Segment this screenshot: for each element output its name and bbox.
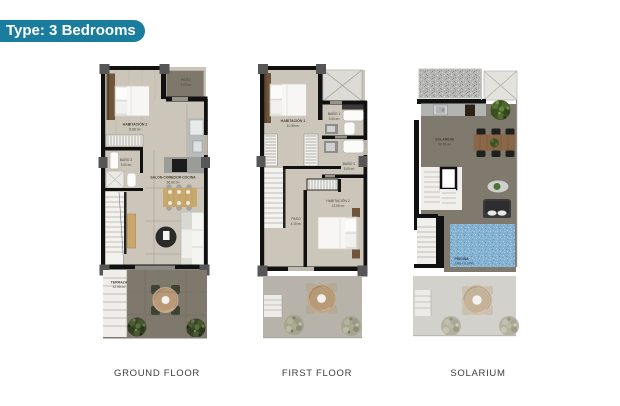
svg-text:PATIO: PATIO	[181, 78, 191, 82]
svg-text:3.00 x 2.00m: 3.00 x 2.00m	[455, 262, 474, 266]
svg-text:PASO: PASO	[291, 217, 301, 221]
svg-text:BAÑO 2: BAÑO 2	[120, 157, 133, 162]
svg-text:SALON-COMEDOR-COCINA: SALON-COMEDOR-COCINA	[150, 176, 196, 180]
svg-text:30.78 m²: 30.78 m²	[438, 143, 452, 147]
svg-text:3.00 m²: 3.00 m²	[181, 83, 192, 87]
svg-text:3.00 m²: 3.00 m²	[329, 117, 340, 121]
svg-text:HABITACIÓN 1: HABITACIÓN 1	[281, 118, 306, 123]
svg-text:HABITACIÓN 2: HABITACIÓN 2	[123, 122, 148, 127]
svg-text:SOLARIUM: SOLARIUM	[435, 138, 454, 142]
svg-text:PISCINA: PISCINA	[455, 257, 470, 261]
svg-text:TERRAZA: TERRAZA	[111, 281, 128, 285]
svg-text:BAÑO 1: BAÑO 1	[328, 111, 341, 116]
svg-text:HABITACIÓN 2: HABITACIÓN 2	[326, 198, 349, 203]
svg-text:12.95 m²: 12.95 m²	[332, 204, 345, 208]
svg-text:4.15 m²: 4.15 m²	[291, 222, 302, 226]
svg-text:26.60 m²: 26.60 m²	[166, 181, 180, 185]
svg-text:BAÑO 2: BAÑO 2	[343, 161, 356, 166]
svg-text:3.00 m²: 3.00 m²	[121, 163, 132, 167]
svg-text:3.00 m²: 3.00 m²	[344, 167, 355, 171]
svg-text:12.95 m²: 12.95 m²	[112, 285, 126, 289]
svg-text:8.68 m²: 8.68 m²	[129, 128, 141, 132]
svg-text:11.30 m²: 11.30 m²	[287, 124, 301, 128]
